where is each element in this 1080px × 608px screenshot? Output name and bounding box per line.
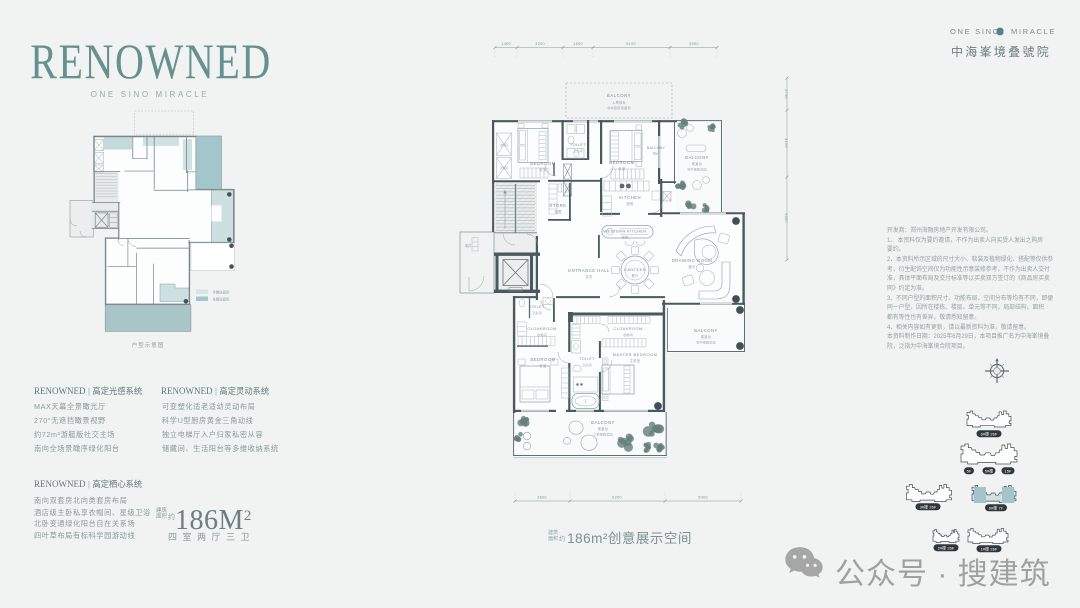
svg-text:CANTEEN: CANTEEN	[624, 267, 646, 272]
svg-text:储藏: 储藏	[554, 209, 562, 214]
svg-text:TOILET: TOILET	[529, 305, 545, 309]
svg-text:阳台: 阳台	[653, 151, 659, 156]
svg-text:6200: 6200	[612, 495, 622, 500]
svg-text:半赠送面积: 半赠送面积	[213, 290, 231, 295]
svg-text:TOILET: TOILET	[570, 142, 586, 147]
svg-text:DRAWING ROOM: DRAWING ROOM	[672, 258, 713, 263]
svg-text:6#楼 7F: 6#楼 7F	[989, 505, 1004, 510]
svg-text:主卧室: 主卧室	[630, 358, 641, 363]
svg-text:卧室: 卧室	[618, 166, 626, 171]
svg-text:WESTERN KITCHEN: WESTERN KITCHEN	[603, 229, 646, 234]
svg-text:5F: 5F	[967, 468, 972, 473]
svg-text:KITCHEN: KITCHEN	[619, 195, 641, 200]
svg-text:卫生间: 卫生间	[582, 362, 592, 367]
svg-text:3200: 3200	[535, 41, 545, 46]
svg-text:空中禅韵花园: 空中禅韵花园	[687, 167, 707, 172]
svg-text:BALCONY: BALCONY	[647, 146, 666, 150]
svg-text:TOILET: TOILET	[579, 357, 595, 361]
svg-text:上层阳台: 上层阳台	[612, 100, 626, 105]
svg-text:衣帽间: 衣帽间	[500, 166, 508, 170]
svg-text:衣帽间: 衣帽间	[537, 332, 547, 337]
svg-text:CLOAKROOM: CLOAKROOM	[527, 326, 556, 331]
svg-text:餐厅: 餐厅	[631, 273, 639, 278]
svg-text:BEDROOM: BEDROOM	[609, 160, 634, 165]
svg-text:观景台: 观景台	[692, 161, 703, 166]
svg-text:电井: 电井	[465, 243, 471, 248]
svg-text:5100: 5100	[626, 41, 636, 46]
svg-text:全赠送面积: 全赠送面积	[213, 297, 231, 302]
svg-text:衣帽间: 衣帽间	[623, 332, 633, 337]
svg-text:BALCONY: BALCONY	[685, 155, 709, 160]
svg-text:厨房: 厨房	[626, 201, 634, 206]
svg-text:客厅: 客厅	[688, 264, 696, 269]
svg-text:衣帽间: 衣帽间	[500, 143, 508, 147]
svg-text:BALCONY: BALCONY	[607, 93, 631, 98]
svg-text:3600: 3600	[537, 495, 547, 500]
svg-text:4600: 4600	[784, 213, 789, 223]
svg-text:5000: 5000	[698, 495, 708, 500]
svg-text:玄关: 玄关	[585, 274, 593, 279]
svg-text:观景台: 观景台	[598, 426, 609, 431]
svg-text:2700: 2700	[784, 89, 789, 99]
svg-text:空中禅韵花园: 空中禅韵花园	[696, 340, 716, 345]
svg-text:3000: 3000	[689, 41, 699, 46]
svg-text:MASTER BEDROOM: MASTER BEDROOM	[613, 352, 658, 357]
svg-text:CLOAKROOM: CLOAKROOM	[613, 326, 642, 331]
svg-text:观景台: 观景台	[701, 334, 712, 339]
svg-text:卫生间: 卫生间	[532, 310, 542, 315]
svg-text:BEDROOM: BEDROOM	[530, 357, 555, 362]
svg-text:非本层使用面积: 非本层使用面积	[607, 105, 631, 110]
svg-text:STORE: STORE	[550, 203, 567, 208]
svg-text:西厨: 西厨	[622, 235, 629, 240]
svg-text:三季禅韵花园: 三季禅韵花园	[593, 432, 613, 437]
svg-text:4100: 4100	[784, 138, 789, 148]
svg-text:1400: 1400	[501, 41, 511, 46]
svg-text:5#楼: 5#楼	[985, 468, 994, 473]
svg-text:3#楼 26F: 3#楼 26F	[920, 504, 937, 509]
svg-text:卫生间: 卫生间	[573, 148, 583, 153]
svg-text:卧室: 卧室	[539, 167, 547, 172]
svg-text:BEDROOM: BEDROOM	[530, 161, 555, 166]
svg-text:卧室: 卧室	[539, 363, 547, 368]
svg-text:BALCONY: BALCONY	[694, 328, 718, 333]
svg-text:1800: 1800	[573, 41, 583, 46]
svg-text:BALCONY: BALCONY	[591, 420, 615, 425]
svg-text:6#楼 26F: 6#楼 26F	[981, 431, 998, 436]
svg-text:15F: 15F	[1004, 468, 1012, 473]
svg-text:ENTRANCE HALL: ENTRANCE HALL	[568, 268, 610, 273]
